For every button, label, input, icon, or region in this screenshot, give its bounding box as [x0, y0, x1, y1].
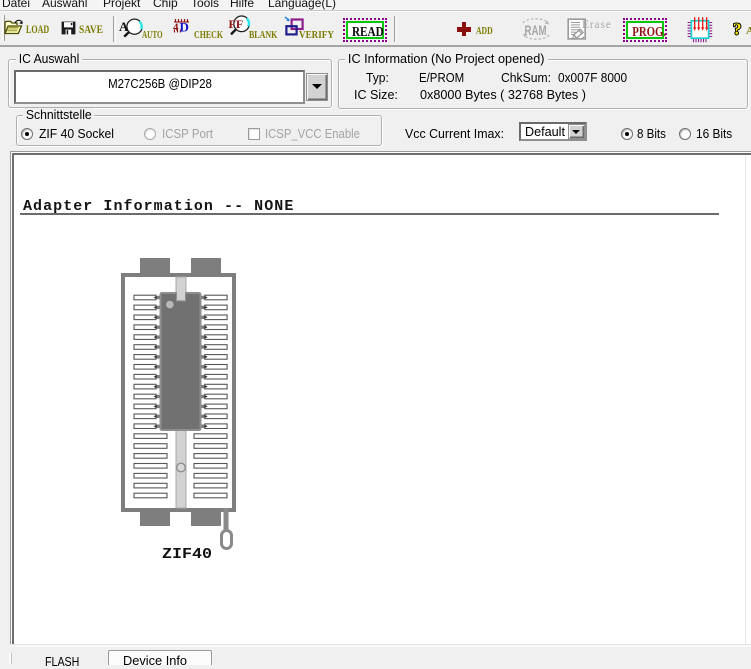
svg-text:A: A — [119, 19, 129, 34]
svg-text:D: D — [180, 20, 189, 34]
svg-text:4: 4 — [173, 22, 179, 34]
svg-text:?: ? — [733, 20, 742, 39]
svg-text:FF: FF — [229, 17, 244, 31]
svg-text:RAM: RAM — [525, 22, 547, 38]
svg-text:ZIF40: ZIF40 — [162, 546, 212, 563]
